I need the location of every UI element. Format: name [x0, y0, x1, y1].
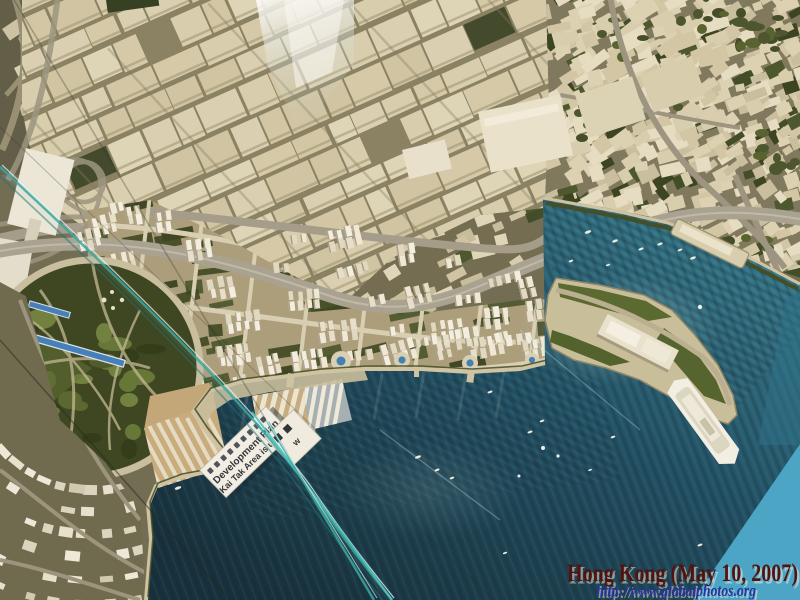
svg-text:http://www.globalphotos.org: http://www.globalphotos.org [596, 581, 756, 600]
